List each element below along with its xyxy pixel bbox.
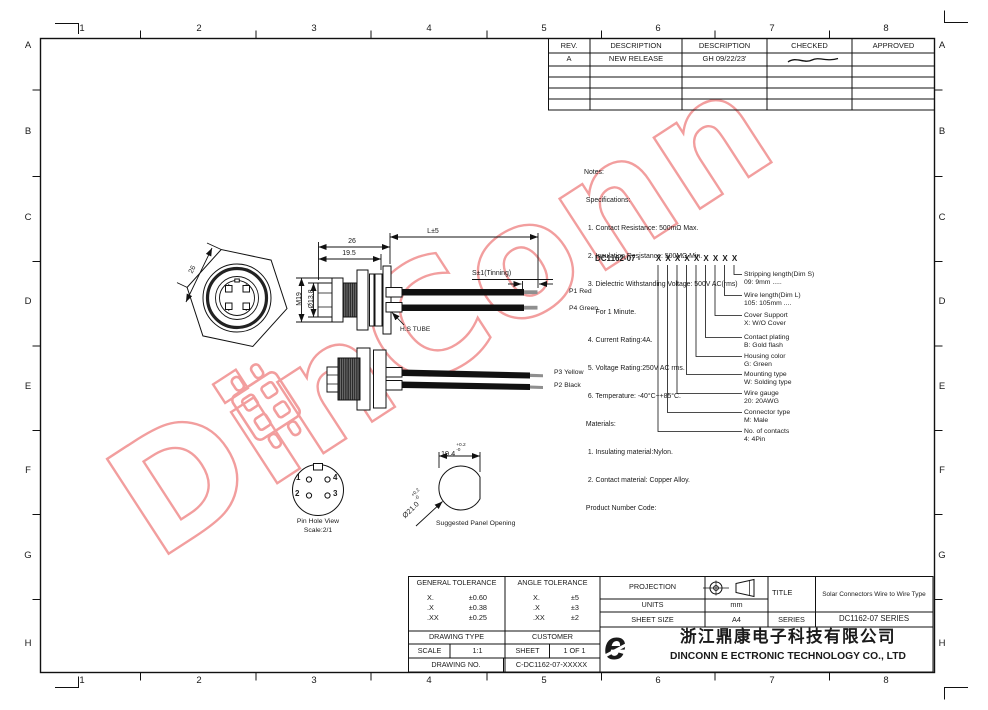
customer-label: CUSTOMER — [506, 633, 599, 641]
grid-col-label: 1 — [72, 24, 92, 35]
title-label: TITLE — [772, 589, 792, 597]
dim-tinning: S±1(Tinning) — [472, 270, 511, 278]
notes-line: 5. Voltage Rating:250V AC rms. — [584, 364, 738, 373]
product-code: DC1162-07 - — [595, 255, 640, 264]
product-code-label: Wire gauge20: 20AWG — [744, 390, 779, 405]
units-value: mm — [706, 601, 767, 609]
grid-col-label: 3 — [304, 24, 324, 35]
grid-row-label: F — [21, 466, 35, 477]
wire-label-p3: P3 Yellow — [554, 369, 583, 377]
grid-col-label: 1 — [72, 676, 92, 687]
general-tolerance-row: X.±0.60 — [427, 594, 487, 602]
product-code-label: Wire length(Dim L)105: 105mm .... — [744, 292, 801, 307]
product-code-x: X — [730, 255, 739, 264]
grid-row-label: E — [21, 382, 35, 393]
wire-label-p2: P2 Black — [554, 382, 581, 390]
grid-col-label: 8 — [876, 24, 896, 35]
dim-inner-dia: Ø13.8 — [308, 283, 316, 315]
grid-col-label: 4 — [419, 24, 439, 35]
angle-tolerance-row: .XX±2 — [533, 614, 579, 622]
notes-line: Specifications: — [584, 196, 738, 205]
panel-opening-caption: Suggested Panel Opening — [436, 520, 515, 528]
product-code-x: X — [711, 255, 720, 264]
product-code-label: Cover SupportX: W/O Cover — [744, 312, 788, 327]
pin-view-scale: Scale:2/1 — [278, 527, 358, 535]
general-tolerance-header: GENERAL TOLERANCE — [409, 579, 504, 587]
scale-value: 1:1 — [451, 647, 504, 655]
product-code-x: X — [673, 255, 682, 264]
drawing-type-label: DRAWING TYPE — [409, 633, 504, 641]
rev-description: NEW RELEASE — [590, 55, 682, 63]
angle-tolerance-row: X.±5 — [533, 594, 579, 602]
grid-col-label: 5 — [534, 676, 554, 687]
company-name-cn: 浙江鼎康电子科技有限公司 — [646, 628, 930, 646]
notes-line: 6. Temperature: -40°C~+85°C. — [584, 392, 738, 401]
notes-line: 2. Contact material: Copper Alloy. — [584, 476, 738, 485]
angle-tolerance-header: ANGLE TOLERANCE — [506, 579, 599, 587]
grid-col-label: 7 — [762, 24, 782, 35]
pin-number-3: 3 — [333, 490, 337, 499]
drawing-sheet: DinConn — [0, 0, 988, 710]
projection-label: PROJECTION — [601, 583, 704, 591]
rev-date: GH 09/22/23' — [682, 55, 767, 63]
grid-col-label: 2 — [189, 676, 209, 687]
scale-label: SCALE — [409, 647, 450, 655]
product-code-label: Connector typeM: Male — [744, 409, 790, 424]
sheet-value: 1 OF 1 — [550, 647, 599, 655]
notes-line: Product Number Code: — [584, 504, 738, 513]
dim-wire-length: L±5 — [418, 228, 448, 236]
grid-row-label: A — [935, 41, 949, 52]
series-label: SERIES — [769, 616, 814, 624]
product-code-x: X — [654, 255, 663, 264]
projection-symbol — [703, 580, 754, 597]
grid-row-label: D — [935, 297, 949, 308]
grid-row-label: F — [935, 466, 949, 477]
notes-block: Notes: Specifications: 1. Contact Resist… — [584, 149, 738, 523]
grid-col-label: 3 — [304, 676, 324, 687]
product-code-label: Housing colorG: Green — [744, 353, 786, 368]
units-label: UNITS — [601, 601, 704, 609]
grid-col-label: 8 — [876, 676, 896, 687]
grid-col-label: 7 — [762, 676, 782, 687]
notes-line: 1. Contact Resistance: 500mΩ Max. — [584, 224, 738, 233]
grid-row-label: C — [21, 213, 35, 224]
notes-line: Notes: — [584, 168, 738, 177]
grid-col-label: 5 — [534, 24, 554, 35]
panel-width-dim: 19.4+0.2-0 — [441, 443, 466, 461]
panel-opening-view — [439, 466, 480, 510]
grid-col-label: 2 — [189, 24, 209, 35]
grid-row-label: H — [935, 639, 949, 650]
wire-label-p4: P4 Green — [569, 305, 598, 313]
grid-col-label: 6 — [648, 676, 668, 687]
rev-header: CHECKED — [767, 42, 852, 50]
drawing-no-label: DRAWING NO. — [409, 661, 503, 669]
grid-row-label: A — [21, 41, 35, 52]
grid-row-label: B — [21, 127, 35, 138]
pin-view-caption: Pin Hole View — [278, 518, 358, 526]
grid-row-label: H — [21, 639, 35, 650]
dim-19-5: 19.5 — [334, 250, 364, 258]
product-code-label: Contact platingB: Gold flash — [744, 334, 789, 349]
grid-row-label: C — [935, 213, 949, 224]
panel-opening-dimensions — [416, 452, 480, 526]
drawing-no-value: C-DC1162-07-XXXXX — [504, 661, 599, 669]
rev-header: APPROVED — [852, 42, 935, 50]
rev-value: A — [548, 55, 590, 63]
title-value: Solar Connectors Wire to Wire Type — [816, 591, 932, 598]
grid-row-label: E — [935, 382, 949, 393]
grid-col-label: 4 — [419, 676, 439, 687]
rev-header: REV. — [548, 42, 590, 50]
grid-row-label: B — [935, 127, 949, 138]
sheet-label: SHEET — [506, 647, 549, 655]
product-code-x: X — [683, 255, 692, 264]
checked-signature — [788, 59, 838, 63]
product-code-x: X — [721, 255, 730, 264]
general-tolerance-row: .XX±0.25 — [427, 614, 487, 622]
notes-line: 3. Dielectric Withstanding Voltage: 500V… — [584, 280, 738, 289]
notes-line: Materials: — [584, 420, 738, 429]
rev-header: DESCRIPTION — [590, 42, 682, 50]
product-code-label: Stripping length(Dim S)09: 9mm ..... — [744, 271, 814, 286]
product-code-label: Mounting typeW: Solding type — [744, 371, 791, 386]
grid-row-label: D — [21, 297, 35, 308]
pin-number-2: 2 — [295, 490, 299, 499]
pin-number-4: 4 — [333, 474, 337, 483]
grid-row-label: G — [21, 551, 35, 562]
product-code-label: No. of contacts4: 4Pin — [744, 428, 789, 443]
hs-tube-label: H.S TUBE — [400, 326, 430, 333]
general-tolerance-row: .X±0.38 — [427, 604, 487, 612]
dim-thread: M19 — [296, 283, 304, 315]
product-code-x: X — [702, 255, 711, 264]
product-code-x: X — [664, 255, 673, 264]
line-art: DinConn — [0, 0, 988, 710]
grid-row-label: G — [935, 551, 949, 562]
notes-line: 1. Insulating material:Nylon. — [584, 448, 738, 457]
pin-number-1: 1 — [296, 474, 300, 483]
dim-26: 26 — [342, 238, 362, 246]
notes-line: 4. Current Rating:4A. — [584, 336, 738, 345]
notes-line: For 1 Minute. — [584, 308, 738, 317]
sheet-size-label: SHEET SIZE — [601, 616, 704, 624]
sheet-size-value: A4 — [706, 616, 767, 624]
grid-col-label: 6 — [648, 24, 668, 35]
product-code-x: X — [692, 255, 701, 264]
series-value: DC1162-07 SERIES — [816, 615, 932, 624]
company-name-en: DINCONN E ECTRONIC TECHNOLOGY CO., LTD — [646, 651, 930, 663]
wire-label-p1: P1 Red — [569, 288, 592, 296]
angle-tolerance-row: .X±3 — [533, 604, 579, 612]
rev-header: DESCRIPTION — [682, 42, 767, 50]
